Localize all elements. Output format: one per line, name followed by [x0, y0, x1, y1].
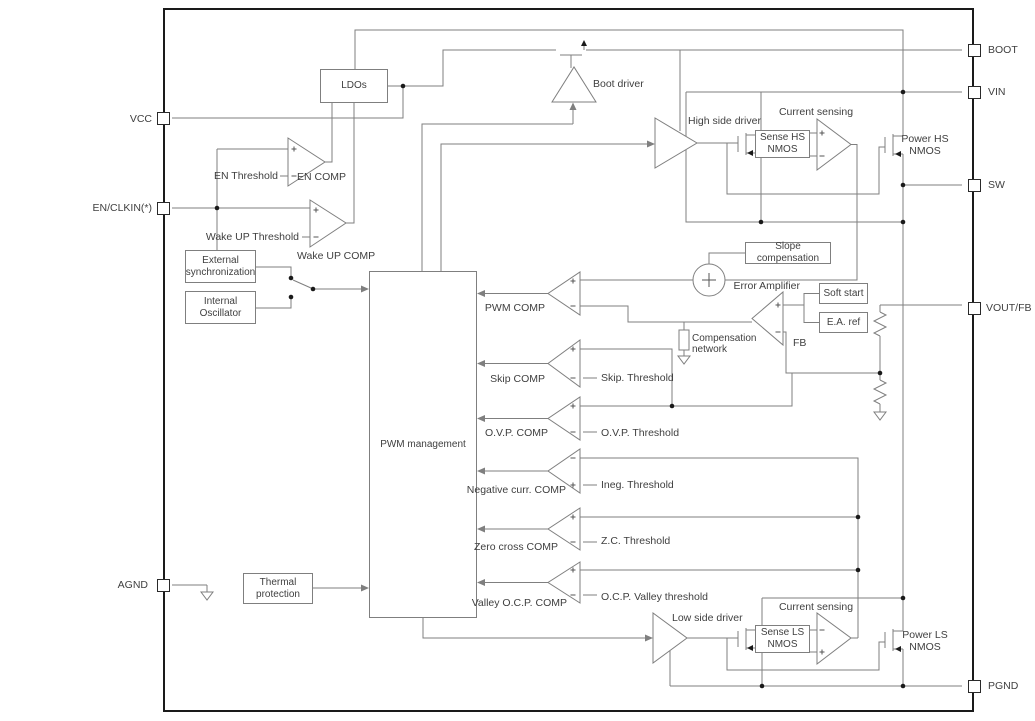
label-power-ls-line1: Power LS — [902, 629, 948, 641]
label-wake-up-comp: Wake UP COMP — [297, 250, 375, 262]
block-soft-start: Soft start — [819, 283, 868, 304]
label-power-ls-nmos: Power LS NMOS — [902, 629, 948, 653]
ovp-comp-triangle — [548, 397, 580, 440]
pin-vout-fb — [968, 302, 981, 315]
pin-boot — [968, 44, 981, 57]
block-sense-ls-nmos: Sense LS NMOS — [755, 625, 810, 653]
block-external-sync-line1: External — [202, 255, 239, 267]
label-skip-comp: Skip COMP — [490, 373, 545, 385]
compensation-network-symbol — [679, 330, 689, 350]
ground-icon — [874, 412, 886, 420]
block-ldos-label: LDOs — [341, 80, 367, 92]
block-external-sync: External synchronization — [185, 250, 256, 283]
ground-icon — [678, 356, 690, 364]
block-internal-oscillator: Internal Oscillator — [185, 291, 256, 324]
block-pwm-management-label: PWM management — [380, 439, 466, 451]
label-compensation-line2: network — [692, 344, 727, 355]
pin-vcc — [157, 112, 170, 125]
pin-label-pgnd: PGND — [988, 680, 1018, 692]
pin-label-en-clkin: EN/CLKIN(*) — [92, 202, 152, 214]
label-power-hs-nmos: Power HS NMOS — [901, 133, 948, 157]
block-thermal-protection-line2: protection — [256, 589, 300, 601]
label-zero-cross-comp: Zero cross COMP — [474, 541, 558, 553]
wake-up-comp-triangle — [310, 200, 346, 247]
label-current-sensing-hs: Current sensing — [779, 106, 853, 118]
sense-ls-mosfet-icon — [738, 628, 755, 651]
pin-sw — [968, 179, 981, 192]
pin-label-boot: BOOT — [988, 44, 1018, 56]
label-negative-curr-comp: Negative curr. COMP — [467, 484, 566, 496]
pin-en-clkin — [157, 202, 170, 215]
label-boot-driver: Boot driver — [593, 78, 644, 90]
pin-label-vout-fb: VOUT/FB — [986, 302, 1032, 314]
label-power-hs-line1: Power HS — [901, 133, 948, 145]
pin-vin — [968, 86, 981, 99]
block-internal-oscillator-line1: Internal — [204, 296, 237, 308]
block-pwm-management: PWM management — [369, 271, 477, 618]
block-ea-ref-label: E.A. ref — [827, 317, 860, 329]
block-sense-hs-nmos: Sense HS NMOS — [755, 130, 810, 158]
label-valley-ocp-comp: Valley O.C.P. COMP — [472, 597, 567, 609]
label-en-threshold: EN Threshold — [214, 170, 278, 182]
label-zc-threshold: Z.C. Threshold — [601, 535, 670, 547]
pin-pgnd — [968, 680, 981, 693]
label-power-ls-line2: NMOS — [909, 641, 941, 653]
label-ovp-comp: O.V.P. COMP — [485, 427, 548, 439]
block-sense-ls-line2: NMOS — [768, 639, 798, 651]
label-pwm-comp: PWM COMP — [485, 302, 545, 314]
label-high-side-driver: High side driver — [688, 115, 761, 127]
block-ldos: LDOs — [320, 69, 388, 103]
label-en-comp: EN COMP — [297, 171, 346, 183]
sense-hs-mosfet-icon — [738, 133, 755, 156]
pin-label-sw: SW — [988, 179, 1005, 191]
label-skip-threshold: Skip. Threshold — [601, 372, 674, 384]
block-diagram: LDOs External synchronization Internal O… — [0, 0, 1035, 721]
block-soft-start-label: Soft start — [823, 288, 863, 300]
power-ls-mosfet-icon — [885, 629, 903, 652]
label-ovp-threshold: O.V.P. Threshold — [601, 427, 679, 439]
label-low-side-driver: Low side driver — [672, 612, 743, 624]
boot-fet-arrow-icon — [581, 40, 587, 46]
pin-agnd — [157, 579, 170, 592]
current-sensing-ls-triangle — [817, 613, 851, 664]
pin-label-vcc: VCC — [130, 113, 152, 125]
label-ineg-threshold: Ineg. Threshold — [601, 479, 674, 491]
wire-layer — [0, 0, 1035, 721]
block-thermal-protection: Thermal protection — [243, 573, 313, 604]
pin-label-vin: VIN — [988, 86, 1006, 98]
current-sensing-hs-triangle — [817, 119, 851, 170]
pwm-comp-triangle — [548, 272, 580, 315]
boot-driver-triangle — [552, 67, 596, 102]
label-power-hs-line2: NMOS — [909, 145, 941, 157]
block-sense-hs-line1: Sense HS — [760, 132, 805, 144]
label-compensation-line1: Compensation — [692, 333, 756, 344]
block-external-sync-line2: synchronization — [186, 267, 255, 279]
block-slope-compensation-label: Slope compensation — [746, 241, 830, 265]
block-thermal-protection-line1: Thermal — [260, 577, 297, 589]
label-compensation-network: Compensation network — [692, 333, 762, 355]
label-current-sensing-ls: Current sensing — [779, 601, 853, 613]
power-hs-mosfet-icon — [885, 134, 903, 157]
pin-label-agnd: AGND — [118, 579, 148, 591]
block-sense-hs-line2: NMOS — [768, 144, 798, 156]
block-sense-ls-line1: Sense LS — [761, 627, 804, 639]
block-internal-oscillator-line2: Oscillator — [200, 308, 242, 320]
block-slope-compensation: Slope compensation — [745, 242, 831, 264]
label-fb: FB — [793, 337, 806, 349]
label-error-amplifier: Error Amplifier — [733, 280, 800, 292]
label-wake-up-threshold: Wake UP Threshold — [206, 231, 299, 243]
label-ocp-valley-threshold: O.C.P. Valley threshold — [601, 591, 708, 603]
ground-icon — [201, 592, 213, 600]
skip-comp-triangle — [548, 340, 580, 387]
block-ea-ref: E.A. ref — [819, 312, 868, 333]
